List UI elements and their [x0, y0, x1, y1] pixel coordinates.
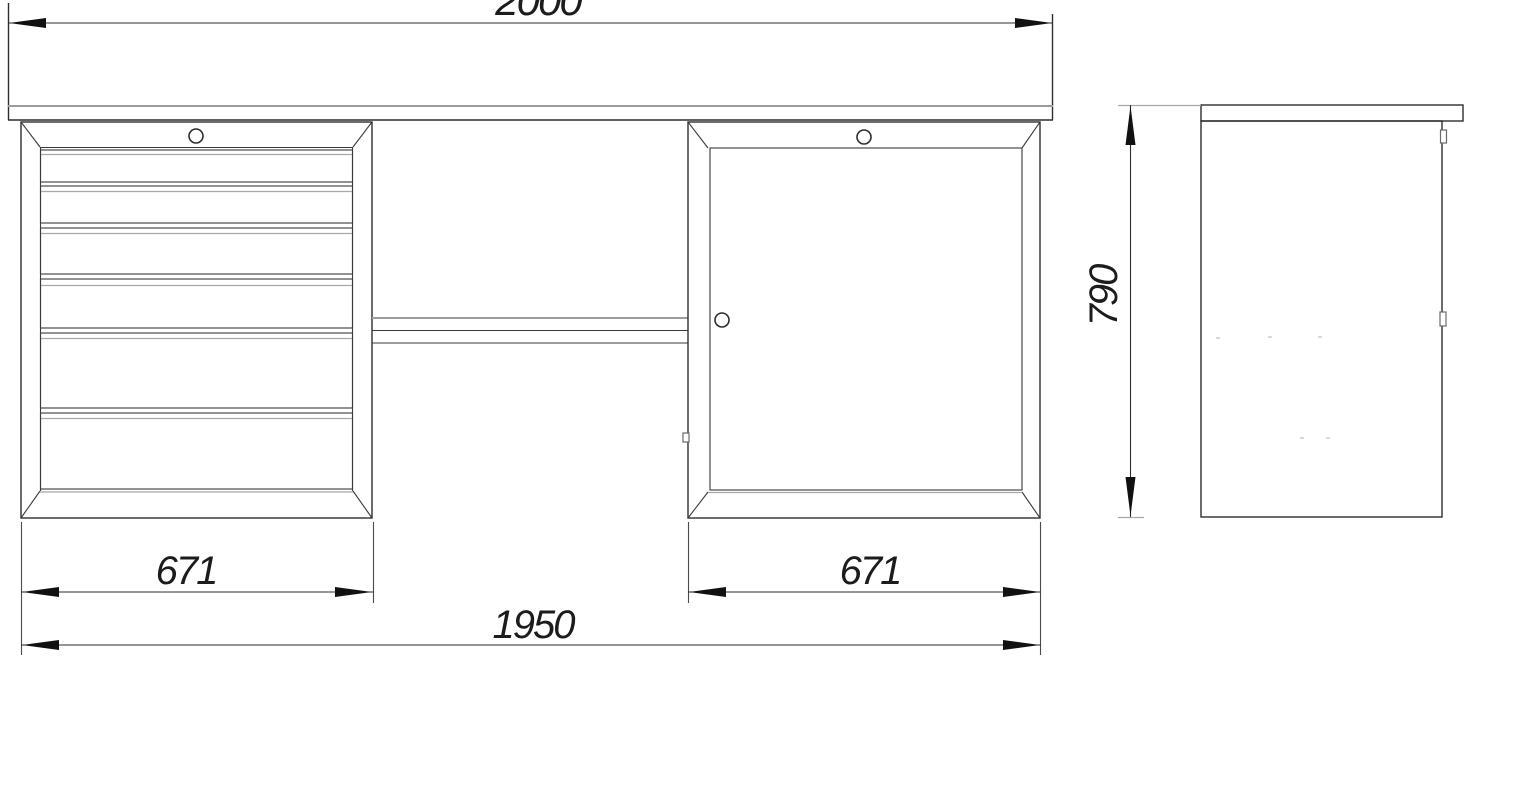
drawer-front [41, 228, 353, 274]
cabinet-body-side [1201, 121, 1442, 517]
drawer-6 [41, 413, 353, 489]
chamfer-bottom-right [1022, 492, 1040, 518]
arrowhead-right [1003, 640, 1040, 650]
dimension-label-790: 790 [1082, 264, 1126, 326]
drawer-1 [41, 150, 353, 182]
door-handle-hole [715, 313, 729, 327]
dimension-label-1950: 1950 [493, 603, 576, 647]
technical-drawing: 2000 [0, 0, 1535, 809]
arrowhead-up [1126, 106, 1136, 145]
lock-icon [189, 129, 203, 143]
drawer-front [41, 279, 353, 328]
lock-icon [857, 130, 871, 144]
drawer-front [41, 413, 353, 489]
drawer-2 [41, 186, 353, 223]
arrowhead-left [22, 640, 59, 650]
chamfer-bottom-left [688, 492, 708, 518]
dimension-left-unit-width: 671 [21, 522, 374, 655]
stretcher-rail [372, 318, 688, 343]
chamfer-top-right [1022, 122, 1040, 148]
door-cabinet [683, 122, 1040, 518]
chamfer-top-left [688, 122, 708, 148]
chamfer-top-right [353, 122, 372, 147]
dimension-overall-width: 2000 [9, 0, 1053, 28]
dimension-label-671-left: 671 [156, 549, 217, 593]
dimension-height: 790 [1082, 105, 1201, 518]
faint-mark [1318, 336, 1322, 338]
cabinet-door [710, 148, 1022, 490]
dimension-label-2000: 2000 [494, 0, 583, 24]
hinge-mark-top [1441, 130, 1447, 143]
faint-mark [1326, 437, 1330, 439]
hinge-mark [683, 433, 689, 442]
arrowhead-left [689, 587, 726, 597]
chamfer-bottom-left [21, 491, 40, 518]
cabinet-outer-frame [688, 122, 1040, 518]
dimension-right-unit-width: 671 [688, 522, 1041, 655]
arrowhead-right [1015, 18, 1052, 28]
dimension-label-671-right: 671 [840, 549, 901, 593]
faint-mark [1300, 437, 1304, 439]
drawer-front [41, 333, 353, 408]
worktop-side [1201, 105, 1463, 121]
arrowhead-down [1126, 477, 1136, 516]
drawer-3 [41, 228, 353, 274]
drawer-unit-outer-frame [21, 122, 372, 518]
faint-mark [1268, 336, 1272, 338]
arrowhead-left [22, 587, 59, 597]
drawer-unit [21, 122, 372, 518]
arrowhead-right [335, 587, 372, 597]
dimension-base-width: 1950 [21, 603, 1041, 650]
side-view: 790 [1082, 105, 1463, 518]
chamfer-bottom-right [353, 491, 372, 518]
drawing-canvas: 2000 [0, 0, 1535, 809]
faint-mark [1216, 337, 1220, 339]
front-view: 2000 [8, 0, 1053, 655]
drawer-4 [41, 279, 353, 328]
drawer-5 [41, 333, 353, 408]
hinge-mark-middle [1440, 312, 1446, 326]
arrowhead-right [1003, 587, 1040, 597]
chamfer-top-left [21, 122, 40, 147]
arrowhead-left [9, 18, 46, 28]
